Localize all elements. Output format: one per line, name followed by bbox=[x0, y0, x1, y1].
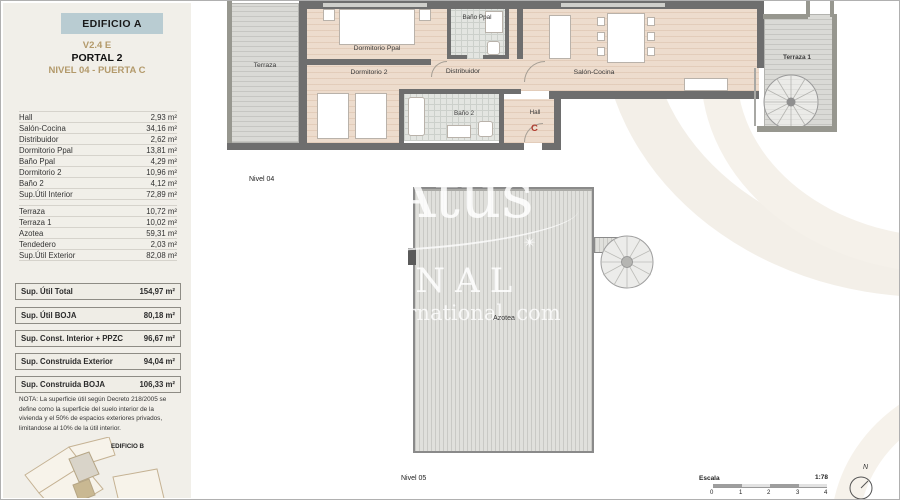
wall bbox=[517, 9, 523, 59]
summary-value: 96,67 m² bbox=[144, 334, 175, 343]
row-value: 2,03 m² bbox=[151, 240, 177, 249]
wall bbox=[757, 1, 764, 68]
chair bbox=[597, 17, 605, 26]
row-label: Dormitorio 2 bbox=[19, 168, 61, 177]
summary-label: Sup. Útil BOJA bbox=[21, 311, 76, 320]
summary-label: Sup. Construida BOJA bbox=[21, 380, 105, 389]
summary-box: Sup. Construida BOJA106,33 m² bbox=[15, 376, 181, 393]
table-row: Baño Ppal4,29 m² bbox=[19, 156, 177, 167]
kitchen-island bbox=[549, 15, 571, 59]
row-value: 72,89 m² bbox=[146, 190, 177, 199]
row-label: Azotea bbox=[19, 229, 43, 238]
row-label: Sup.Útil Interior bbox=[19, 190, 73, 199]
room-label-hall: Hall bbox=[515, 110, 555, 116]
wall bbox=[483, 55, 509, 59]
row-label: Distribuidor bbox=[19, 135, 58, 144]
row-label: Baño 2 bbox=[19, 179, 44, 188]
summary-label: Sup. Const. Interior + PPZC bbox=[21, 334, 123, 343]
row-label: Sup.Útil Exterior bbox=[19, 251, 75, 260]
nightstand bbox=[419, 9, 431, 21]
scale-segment bbox=[770, 484, 799, 487]
wall bbox=[542, 143, 561, 150]
terraza-floor bbox=[231, 3, 299, 143]
scale-tick: 2 bbox=[767, 490, 770, 496]
room-label-dormitorio-ppal: Dormitorio Ppal bbox=[307, 46, 447, 53]
row-value: 10,96 m² bbox=[146, 168, 177, 177]
terrace-parapet bbox=[227, 1, 232, 147]
plan-sheet: EDIFICIO A V2.4 E PORTAL 2 NIVEL 04 - PU… bbox=[0, 0, 900, 500]
bed-single bbox=[317, 93, 349, 139]
north-arrow-icon bbox=[849, 476, 873, 500]
summary-value: 94,04 m² bbox=[144, 357, 175, 366]
terrace1-parapet bbox=[806, 1, 810, 17]
sink bbox=[447, 125, 471, 138]
row-value: 2,93 m² bbox=[151, 113, 177, 122]
wall bbox=[505, 9, 509, 59]
room-label-terraza-1: Terraza 1 bbox=[764, 55, 830, 62]
wall bbox=[307, 59, 431, 65]
wall bbox=[299, 9, 307, 143]
row-label: Tendedero bbox=[19, 240, 56, 249]
table-row: Dormitorio Ppal13,81 m² bbox=[19, 145, 177, 156]
summary-value: 154,97 m² bbox=[139, 287, 175, 296]
table-row: Terraza 110,02 m² bbox=[19, 217, 177, 228]
scale-tick: 0 bbox=[710, 490, 713, 496]
table-row: Distribuidor2,62 m² bbox=[19, 134, 177, 145]
summary-box: Sup. Útil BOJA80,18 m² bbox=[15, 307, 181, 324]
terrace1-parapet bbox=[763, 14, 808, 19]
wall bbox=[549, 91, 759, 99]
wall bbox=[554, 99, 561, 143]
exterior-areas-table: Terraza10,72 m² Terraza 110,02 m² Azotea… bbox=[19, 205, 177, 261]
row-label: Terraza bbox=[19, 207, 45, 216]
watermark-star-icon: ✴ bbox=[523, 233, 536, 252]
scale-ratio: 1:78 bbox=[815, 474, 828, 481]
summary-label: Sup. Útil Total bbox=[21, 287, 73, 296]
row-value: 2,62 m² bbox=[151, 135, 177, 144]
scale-tick: 1 bbox=[739, 490, 742, 496]
row-label: Terraza 1 bbox=[19, 218, 52, 227]
scale-label: Escala bbox=[699, 475, 720, 482]
level-door-title: NIVEL 04 - PUERTA C bbox=[3, 65, 191, 76]
scale-tick: 3 bbox=[796, 490, 799, 496]
siteplan-drawing bbox=[17, 437, 181, 498]
chair bbox=[647, 17, 655, 26]
wall bbox=[447, 55, 467, 59]
room-label-distribuidor: Distribuidor bbox=[431, 69, 495, 76]
table-row: Azotea59,31 m² bbox=[19, 228, 177, 239]
terrace1-parapet bbox=[757, 126, 837, 132]
room-label-bano-2: Baño 2 bbox=[434, 111, 494, 117]
portal-title: PORTAL 2 bbox=[3, 52, 191, 64]
chair bbox=[597, 47, 605, 56]
bathtub bbox=[408, 97, 425, 136]
room-label-bano-ppal: Baño Ppal bbox=[449, 15, 505, 21]
row-value: 10,72 m² bbox=[146, 207, 177, 216]
terrace1-parapet bbox=[832, 14, 837, 131]
wall bbox=[499, 94, 504, 143]
scale-tick: 4 bbox=[824, 490, 827, 496]
sliding-door bbox=[754, 68, 756, 126]
level-label-nivel-05: Nivel 05 bbox=[401, 475, 426, 482]
scale-segment bbox=[799, 484, 828, 487]
bed-double bbox=[339, 9, 415, 45]
table-row: Terraza10,72 m² bbox=[19, 206, 177, 217]
dining-table bbox=[607, 13, 645, 63]
row-label: Dormitorio Ppal bbox=[19, 146, 73, 155]
window bbox=[561, 3, 665, 7]
interior-areas-table: Hall2,93 m² Salón-Cocina34,16 m² Distrib… bbox=[19, 111, 177, 200]
door-letter: C bbox=[531, 123, 538, 134]
room-label-terraza: Terraza bbox=[231, 63, 299, 70]
summary-box: Sup. Construida Exterior94,04 m² bbox=[15, 353, 181, 370]
table-row: Baño 24,12 m² bbox=[19, 178, 177, 189]
bed-single bbox=[355, 93, 387, 139]
wall bbox=[399, 94, 404, 143]
room-label-dormitorio-2: Dormitorio 2 bbox=[307, 70, 431, 77]
summary-value: 80,18 m² bbox=[144, 311, 175, 320]
scale-segment bbox=[713, 484, 742, 487]
nightstand bbox=[323, 9, 335, 21]
table-row: Dormitorio 210,96 m² bbox=[19, 167, 177, 178]
room-label-salon-cocina: Salón-Cocina bbox=[553, 70, 635, 77]
table-row: Sup.Útil Interior72,89 m² bbox=[19, 189, 177, 200]
watermark-line2: NATIONAL bbox=[249, 261, 522, 301]
building-title: EDIFICIO A bbox=[61, 13, 163, 34]
chair bbox=[597, 32, 605, 41]
row-value: 4,12 m² bbox=[151, 179, 177, 188]
window bbox=[323, 3, 427, 7]
level-label-nivel-04: Nivel 04 bbox=[249, 176, 274, 183]
row-value: 13,81 m² bbox=[146, 146, 177, 155]
legal-note: NOTA: La superficie útil según Decreto 2… bbox=[19, 395, 177, 433]
info-panel: EDIFICIO A V2.4 E PORTAL 2 NIVEL 04 - PU… bbox=[3, 3, 191, 498]
row-label: Hall bbox=[19, 113, 32, 122]
row-value: 34,16 m² bbox=[146, 124, 177, 133]
row-label: Salón-Cocina bbox=[19, 124, 66, 133]
toilet bbox=[487, 41, 500, 55]
summary-value: 106,33 m² bbox=[139, 380, 175, 389]
table-row: Sup.Útil Exterior82,08 m² bbox=[19, 250, 177, 261]
summary-box: Sup. Const. Interior + PPZC96,67 m² bbox=[15, 330, 181, 347]
row-label: Baño Ppal bbox=[19, 157, 55, 166]
spiral-stair bbox=[761, 73, 825, 131]
north-label: N bbox=[863, 464, 868, 471]
room-label-azotea: Azotea bbox=[474, 315, 534, 322]
wall bbox=[227, 143, 524, 150]
table-row: Salón-Cocina34,16 m² bbox=[19, 123, 177, 134]
chair bbox=[647, 32, 655, 41]
summary-box: Sup. Útil Total154,97 m² bbox=[15, 283, 181, 300]
siteplan-building-label: EDIFICIO B bbox=[111, 443, 144, 450]
chair bbox=[647, 47, 655, 56]
sofa bbox=[684, 78, 728, 91]
toilet bbox=[478, 121, 493, 137]
spiral-stair-roof bbox=[598, 231, 656, 293]
row-value: 82,08 m² bbox=[146, 251, 177, 260]
row-value: 10,02 m² bbox=[146, 218, 177, 227]
scale-segment bbox=[742, 484, 771, 487]
row-value: 59,31 m² bbox=[146, 229, 177, 238]
summary-label: Sup. Construida Exterior bbox=[21, 357, 113, 366]
scale-bar bbox=[713, 484, 827, 488]
row-value: 4,29 m² bbox=[151, 157, 177, 166]
table-row: Tendedero2,03 m² bbox=[19, 239, 177, 250]
table-row: Hall2,93 m² bbox=[19, 112, 177, 123]
unit-version: V2.4 E bbox=[3, 40, 191, 51]
